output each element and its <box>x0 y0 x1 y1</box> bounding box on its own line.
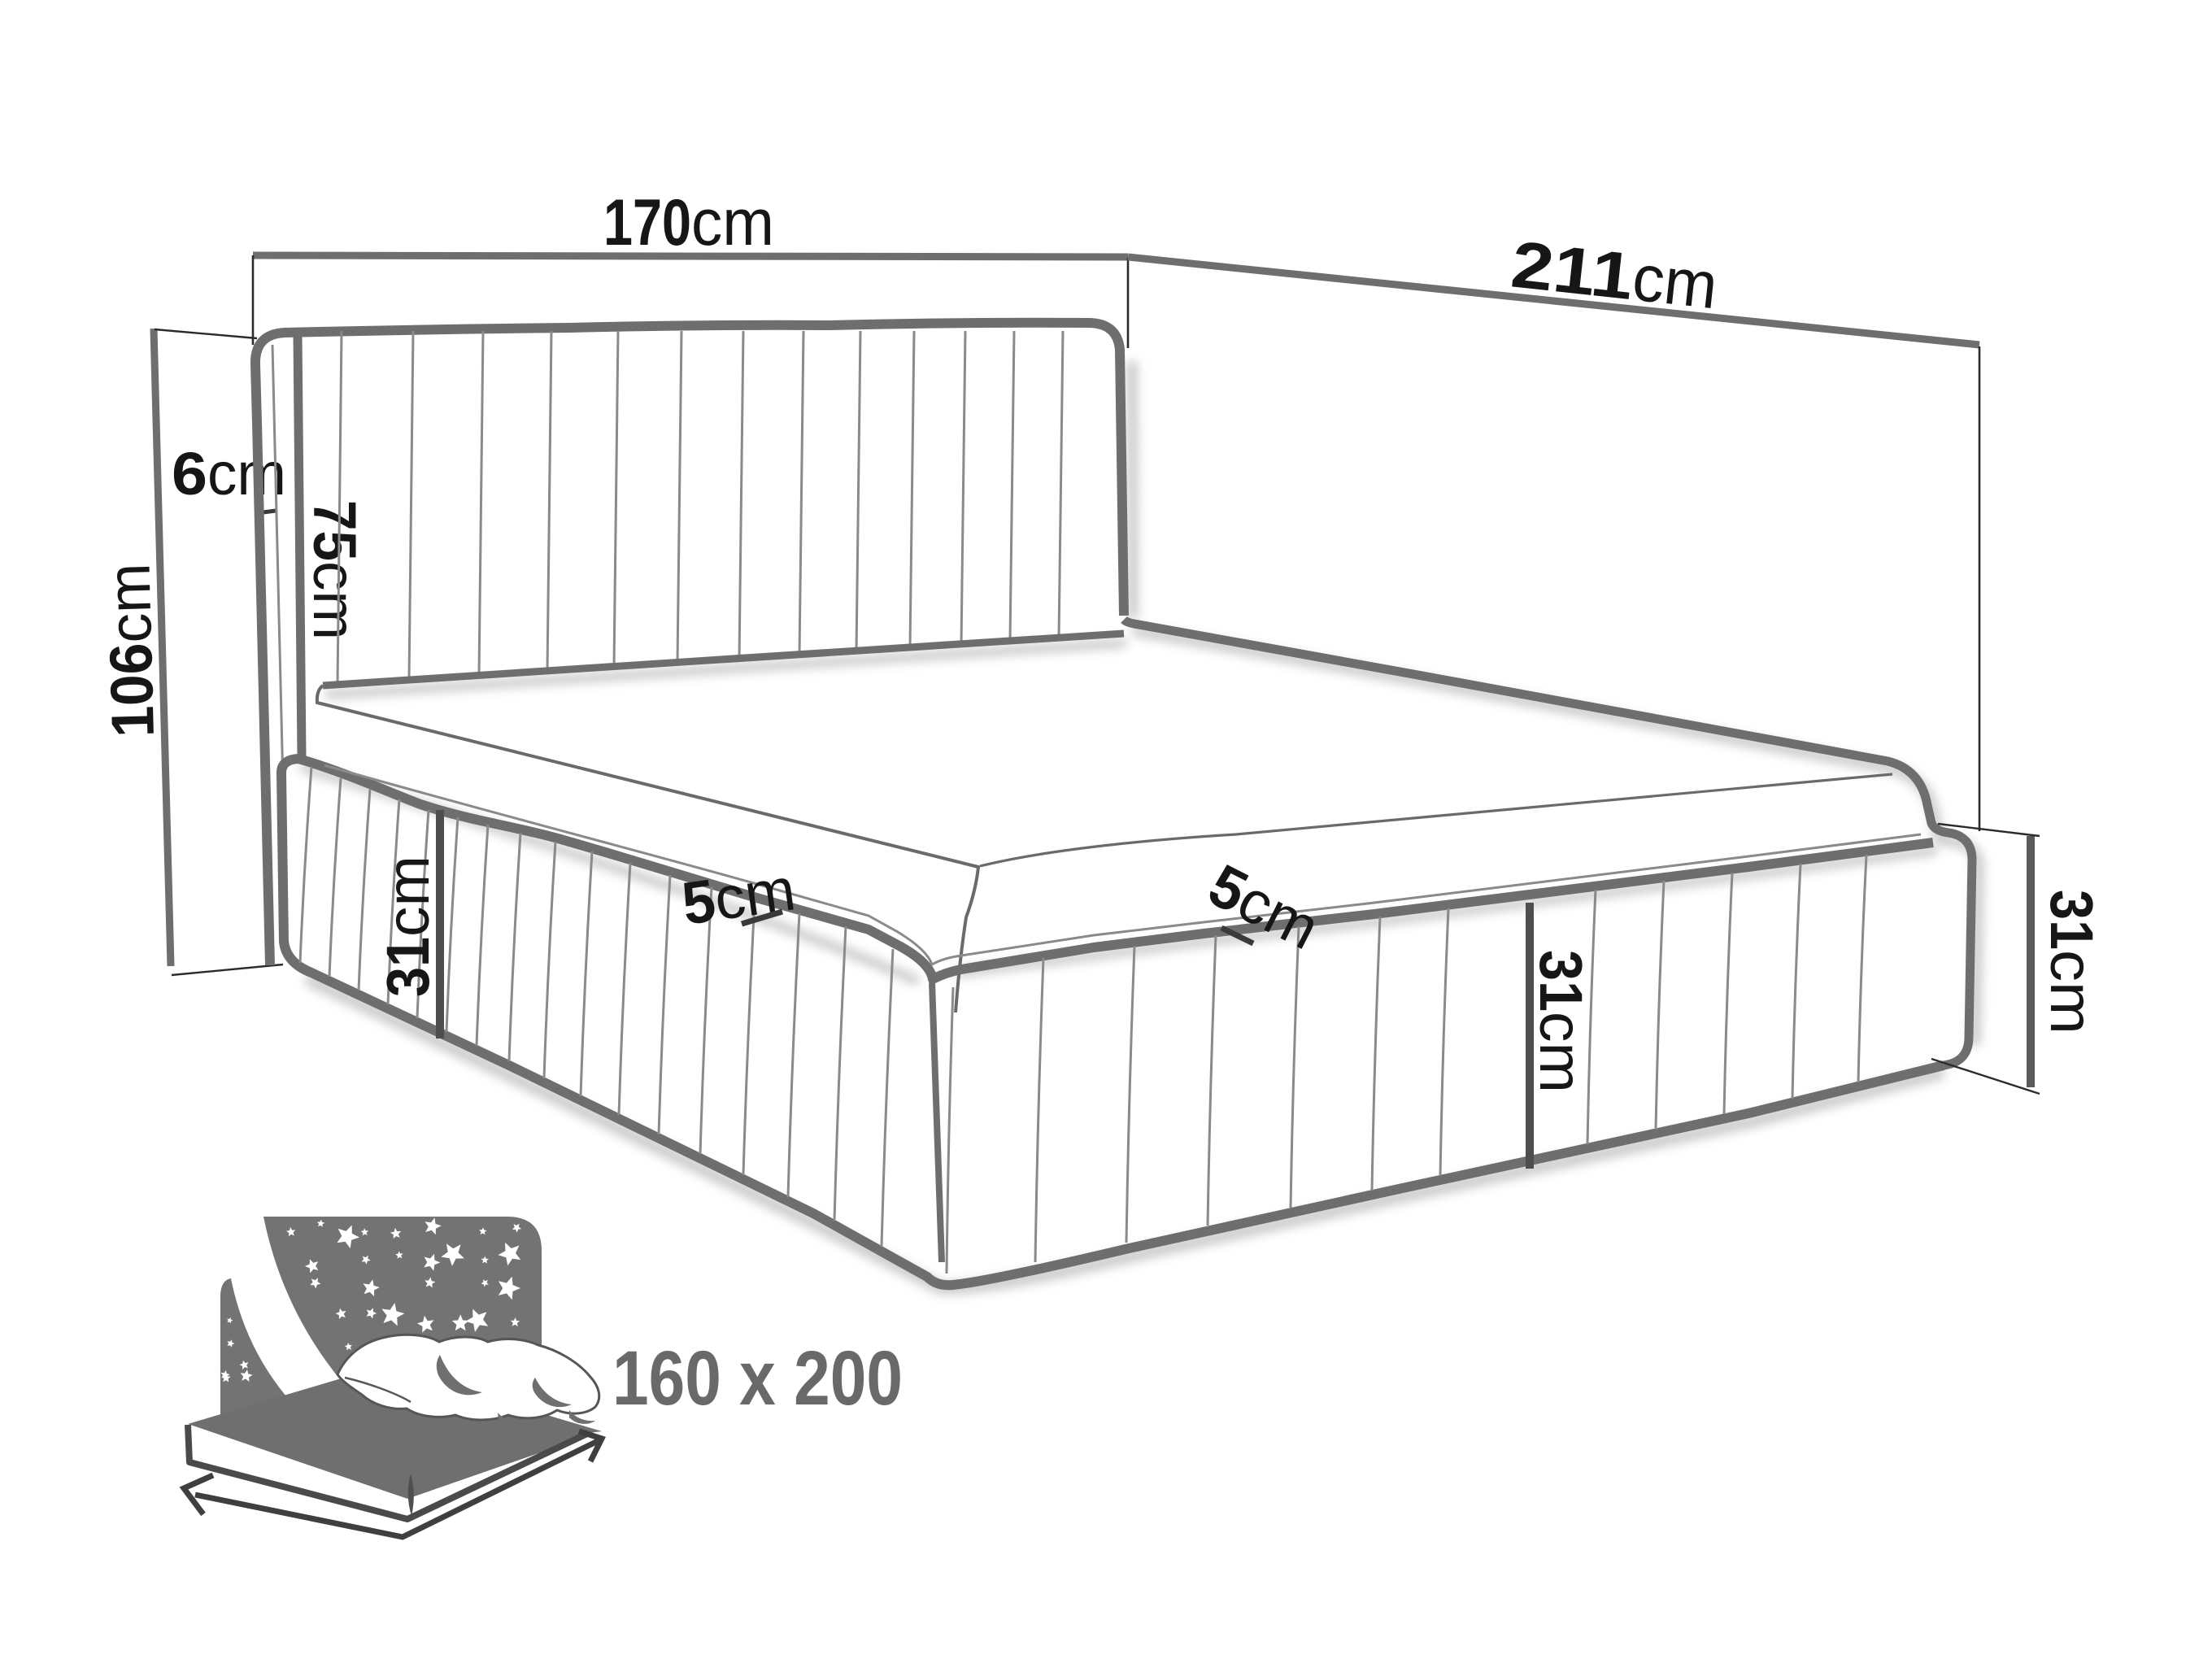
svg-text:31cm: 31cm <box>374 856 442 997</box>
svg-text:106cm: 106cm <box>94 563 167 738</box>
svg-text:170cm: 170cm <box>603 186 774 259</box>
svg-text:6cm: 6cm <box>172 440 286 507</box>
svg-text:75cm: 75cm <box>301 500 368 640</box>
svg-text:31cm: 31cm <box>2038 890 2105 1034</box>
svg-text:160 x 200: 160 x 200 <box>612 1335 903 1422</box>
svg-text:31cm: 31cm <box>1527 950 1595 1093</box>
